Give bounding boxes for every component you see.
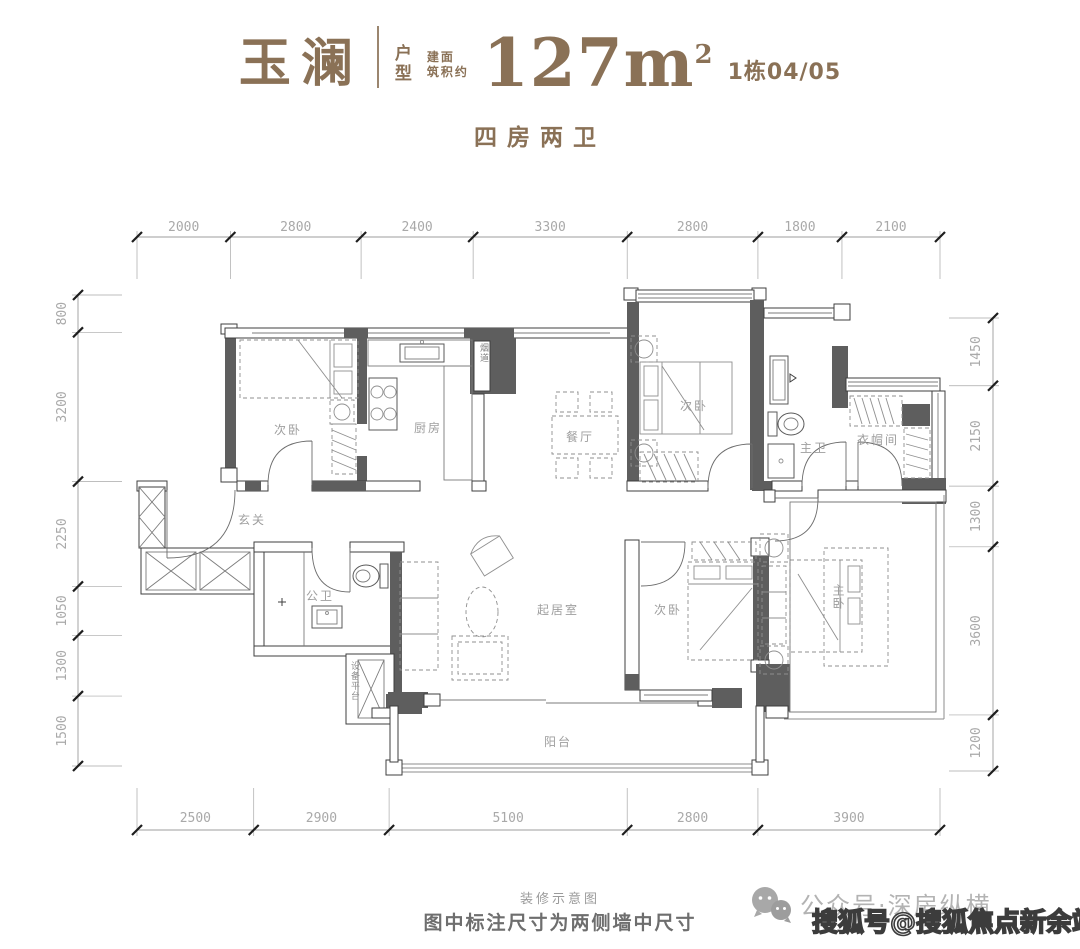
floorplan-page: 玉澜 户 型 建面 筑积约 127m2 1栋04/05 四房两卫 [0, 0, 1080, 949]
dimension-label: 1800 [784, 220, 815, 235]
label-bedroom-bottom: 次卧 [654, 603, 682, 617]
label-master-bath: 主卫 [800, 441, 828, 455]
dimension-label: 2800 [677, 811, 708, 826]
dimension-label: 1050 [55, 595, 70, 626]
dimensions-bottom: 25002900510028003900 [132, 788, 945, 836]
floorplan-drawing: 次卧 厨房 餐厅 次卧 主卫 衣帽间 玄关 公卫 起居室 次卧 阳台 20002… [0, 0, 1080, 949]
dimension-label: 3600 [969, 615, 984, 646]
label-balcony: 阳台 [544, 734, 572, 749]
label-entry: 玄关 [238, 512, 266, 527]
dimension-label: 5100 [492, 811, 523, 826]
dimension-label: 1450 [969, 336, 984, 367]
label-flue: 烟道 [477, 343, 490, 363]
room-labels: 次卧 厨房 餐厅 次卧 主卫 衣帽间 玄关 公卫 起居室 次卧 阳台 [238, 399, 899, 749]
label-bedroom-top-right: 次卧 [680, 399, 708, 413]
dimension-label: 2800 [677, 220, 708, 235]
wechat-icon [748, 884, 798, 932]
label-equipment-platform: 设备平台 [348, 661, 361, 701]
dimension-label: 2500 [180, 811, 211, 826]
dimension-label: 1500 [55, 715, 70, 746]
dimension-label: 1300 [969, 501, 984, 532]
glass-and-railing [386, 495, 944, 775]
dimension-label: 2150 [969, 420, 984, 451]
label-master-bedroom: 主卧 [830, 584, 847, 610]
dimension-label: 2100 [875, 220, 906, 235]
dimension-label: 2900 [306, 811, 337, 826]
dimension-label: 800 [55, 302, 70, 325]
dimensions-top: 2000280024003300280018002100 [132, 220, 945, 279]
label-kitchen: 厨房 [414, 420, 442, 435]
dimension-label: 3300 [535, 220, 566, 235]
dimension-label: 3900 [833, 811, 864, 826]
dimension-label: 2800 [280, 220, 311, 235]
dimensions-right: 14502150130036001200 [949, 313, 999, 776]
label-dining: 餐厅 [566, 429, 594, 444]
dimension-label: 3200 [55, 391, 70, 422]
label-cloakroom: 衣帽间 [857, 432, 899, 447]
dimension-label: 2250 [55, 518, 70, 549]
label-bedroom-top-left: 次卧 [274, 423, 302, 437]
dimensions-left: 80032002250105013001500 [55, 290, 122, 771]
dimension-label: 2400 [401, 220, 432, 235]
dimension-label: 1200 [969, 727, 984, 758]
label-living-room: 起居室 [537, 602, 579, 617]
walls [137, 288, 946, 724]
sohu-watermark: 搜狐号@搜狐焦点新余站 [812, 902, 1080, 939]
dimension-label: 1300 [55, 650, 70, 681]
label-guest-bath: 公卫 [306, 589, 334, 603]
dimension-label: 2000 [168, 220, 199, 235]
